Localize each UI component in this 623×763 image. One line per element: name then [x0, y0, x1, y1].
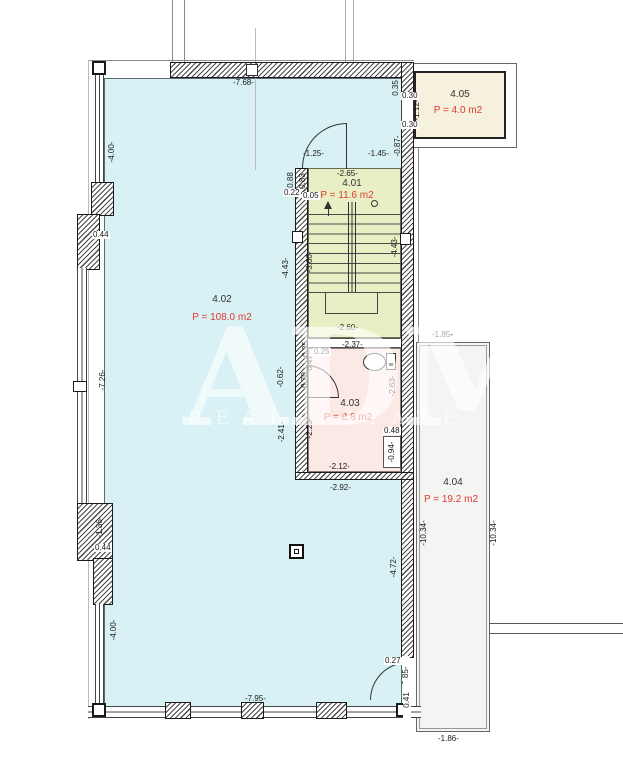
wall-bottom-pier-3: [316, 702, 347, 719]
axis-line: [255, 28, 256, 170]
dim-label: 0.27: [384, 657, 402, 665]
door-leaf-stairwell: [346, 123, 347, 169]
room-403-area: P = 8.8 m2: [308, 413, 388, 423]
dim-label: -2.23-: [306, 408, 314, 448]
facade-outer-line: [88, 60, 414, 61]
dim-label: -2.60-: [337, 324, 358, 332]
stair-rail: [348, 202, 356, 292]
balcony-edge-line: [489, 623, 623, 624]
dim-label: -7.26-: [99, 360, 107, 400]
room-402-area: P = 108.0 m2: [182, 313, 262, 323]
dim-label: -0.62-: [277, 357, 285, 397]
stair-arrow-stem: [328, 208, 329, 216]
dim-label: 0.83: [299, 161, 307, 201]
corner-post-bottom-left: [92, 703, 106, 717]
dim-label: 0.25: [302, 329, 310, 369]
column-marker-inner: [294, 549, 299, 554]
dim-label: -4.72-: [390, 547, 398, 587]
dim-label: -4.00-: [108, 132, 116, 172]
room-401-number: 4.01: [312, 179, 392, 189]
dim-label: 0.44: [92, 231, 110, 239]
stair-landing-outline: [325, 292, 378, 314]
room-405-number: 4.05: [420, 90, 500, 100]
dim-label: -3.60-: [306, 242, 314, 282]
window-left-lower: [95, 604, 104, 707]
dim-label: -7.95-: [245, 695, 266, 703]
dim-label: 0.35: [392, 68, 400, 108]
wall-top-post: [246, 64, 258, 76]
floor-plan: 4.01 P = 11.6 m2 4.02 P = 108.0 m2 4.03 …: [0, 0, 623, 763]
dim-label: 0.41: [403, 679, 411, 721]
room-405-area: P = 4.0 m2: [418, 106, 498, 116]
dim-label: -0.87-: [394, 126, 402, 166]
wall-top: [170, 62, 414, 78]
balcony-edge-line: [489, 633, 623, 634]
dim-label: -7.68-: [233, 79, 254, 87]
dim-label: 0.88: [287, 160, 295, 200]
dim-label: -1.85-: [432, 331, 453, 339]
wall-403-bottom: [295, 472, 414, 480]
axis-line: [172, 0, 173, 63]
dim-label: -4.43-: [391, 227, 399, 267]
dim-label: -1.12-: [413, 90, 421, 130]
dim-label: -1.45-: [368, 150, 389, 158]
dim-label: -2.12-: [329, 463, 350, 471]
wall-left-pier-2: [77, 214, 100, 270]
room-403-number: 4.03: [310, 399, 390, 409]
window-left-upper: [95, 75, 104, 184]
axis-line: [353, 0, 354, 62]
wall-post-right: [400, 233, 411, 245]
dim-label: -1.86-: [438, 735, 459, 743]
dim-label: -10.34-: [490, 513, 498, 553]
dim-label: 0.25: [313, 348, 331, 356]
wall-left-pier-4: [93, 558, 113, 605]
axis-line: [345, 0, 346, 62]
stair-start-circle-icon: [371, 200, 378, 207]
dim-label: -4.43-: [282, 248, 290, 288]
door-leaf-wc: [306, 397, 339, 398]
corner-post-top-left: [92, 61, 106, 75]
wall-right-main: [401, 127, 414, 658]
wall-bottom-pier-1: [165, 702, 191, 719]
toilet-icon: [363, 353, 386, 371]
dim-label: -2.92-: [330, 484, 351, 492]
window-post: [73, 381, 87, 392]
dim-label: -2.65-: [337, 170, 358, 178]
dim-label: -2.63-: [389, 366, 397, 406]
dim-label: -2.41-: [278, 412, 286, 452]
dim-label: -1.25-: [303, 150, 324, 158]
facade-outer-line: [88, 60, 89, 719]
dim-label: -4.00-: [110, 610, 118, 650]
dim-label: -0.94-: [388, 432, 396, 472]
room-404-number: 4.04: [413, 478, 493, 488]
dim-label: -2.37-: [342, 341, 363, 349]
room-404-area: P = 19.2 m2: [411, 495, 491, 505]
dim-label: -10.34-: [420, 513, 428, 553]
wall-left-pier-1: [91, 182, 114, 216]
dim-label: -1.36-: [96, 507, 104, 547]
facade-outer-line: [418, 148, 419, 343]
room-404-inner-line: [419, 345, 487, 729]
wall-post-left: [292, 231, 303, 243]
axis-line: [184, 0, 185, 63]
room-402-number: 4.02: [182, 295, 262, 305]
wall-bottom-pier-2: [241, 702, 264, 719]
